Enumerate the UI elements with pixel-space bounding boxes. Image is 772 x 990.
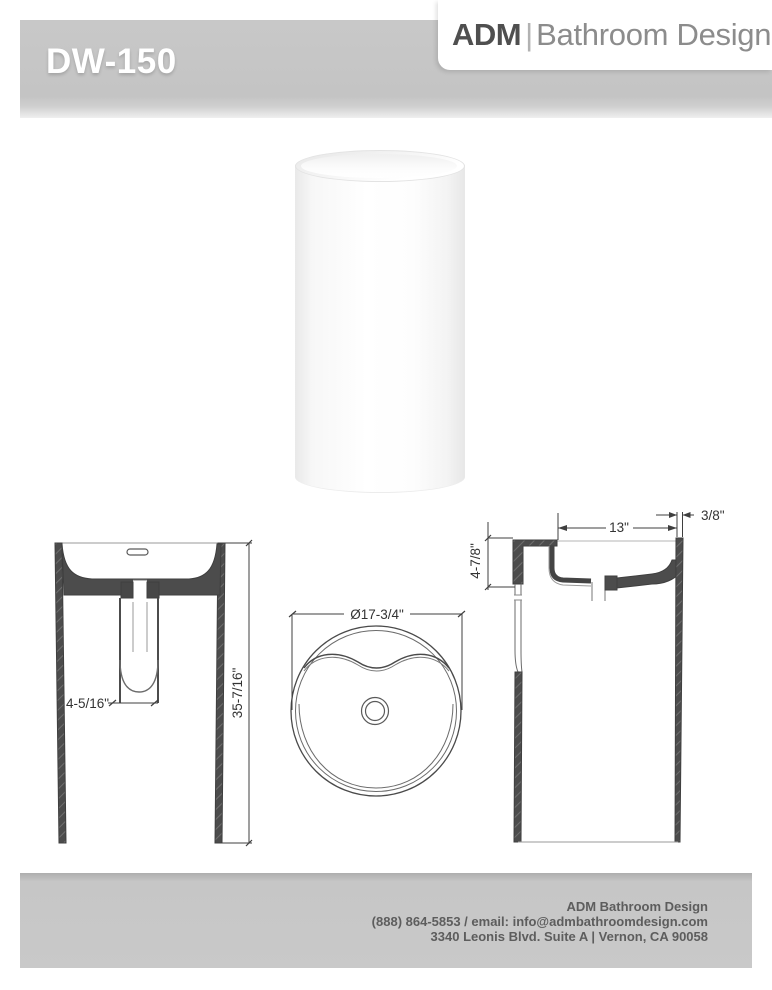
product-render	[295, 150, 465, 492]
side-basin-width-label: 13"	[609, 520, 629, 535]
top-view: Ø17-3/4"	[289, 607, 465, 796]
brand-logo-bold: ADM	[452, 17, 521, 53]
cylinder-inner-rim	[301, 154, 457, 178]
technical-drawings: 4-5/16" 35-7/16"	[0, 500, 772, 870]
brand-logo-light: Bathroom Design	[536, 17, 771, 53]
brand-logo-separator: |	[521, 17, 536, 53]
brand-logo: ADM | Bathroom Design	[438, 0, 772, 70]
front-drain-depth-label: 4-5/16"	[66, 696, 109, 711]
side-view: 13" 3/8" 4-7/8"	[468, 508, 725, 842]
footer-contact: (888) 864-5853 / email: info@admbathroom…	[20, 914, 708, 929]
front-height-label: 35-7/16"	[230, 668, 245, 719]
front-view: 4-5/16" 35-7/16"	[55, 540, 252, 846]
footer-company: ADM Bathroom Design	[20, 899, 708, 914]
side-wall-thickness-label: 3/8"	[701, 508, 725, 523]
footer-contact-bar: ADM Bathroom Design (888) 864-5853 / ema…	[20, 873, 752, 968]
side-basin-depth-label: 4-7/8"	[468, 543, 483, 579]
spec-sheet-page: DW-150 ADM | Bathroom Design	[0, 0, 772, 990]
top-diameter-label: Ø17-3/4"	[350, 607, 404, 622]
footer-address: 3340 Leonis Blvd. Suite A | Vernon, CA 9…	[20, 929, 708, 944]
cylinder-body	[295, 165, 465, 493]
